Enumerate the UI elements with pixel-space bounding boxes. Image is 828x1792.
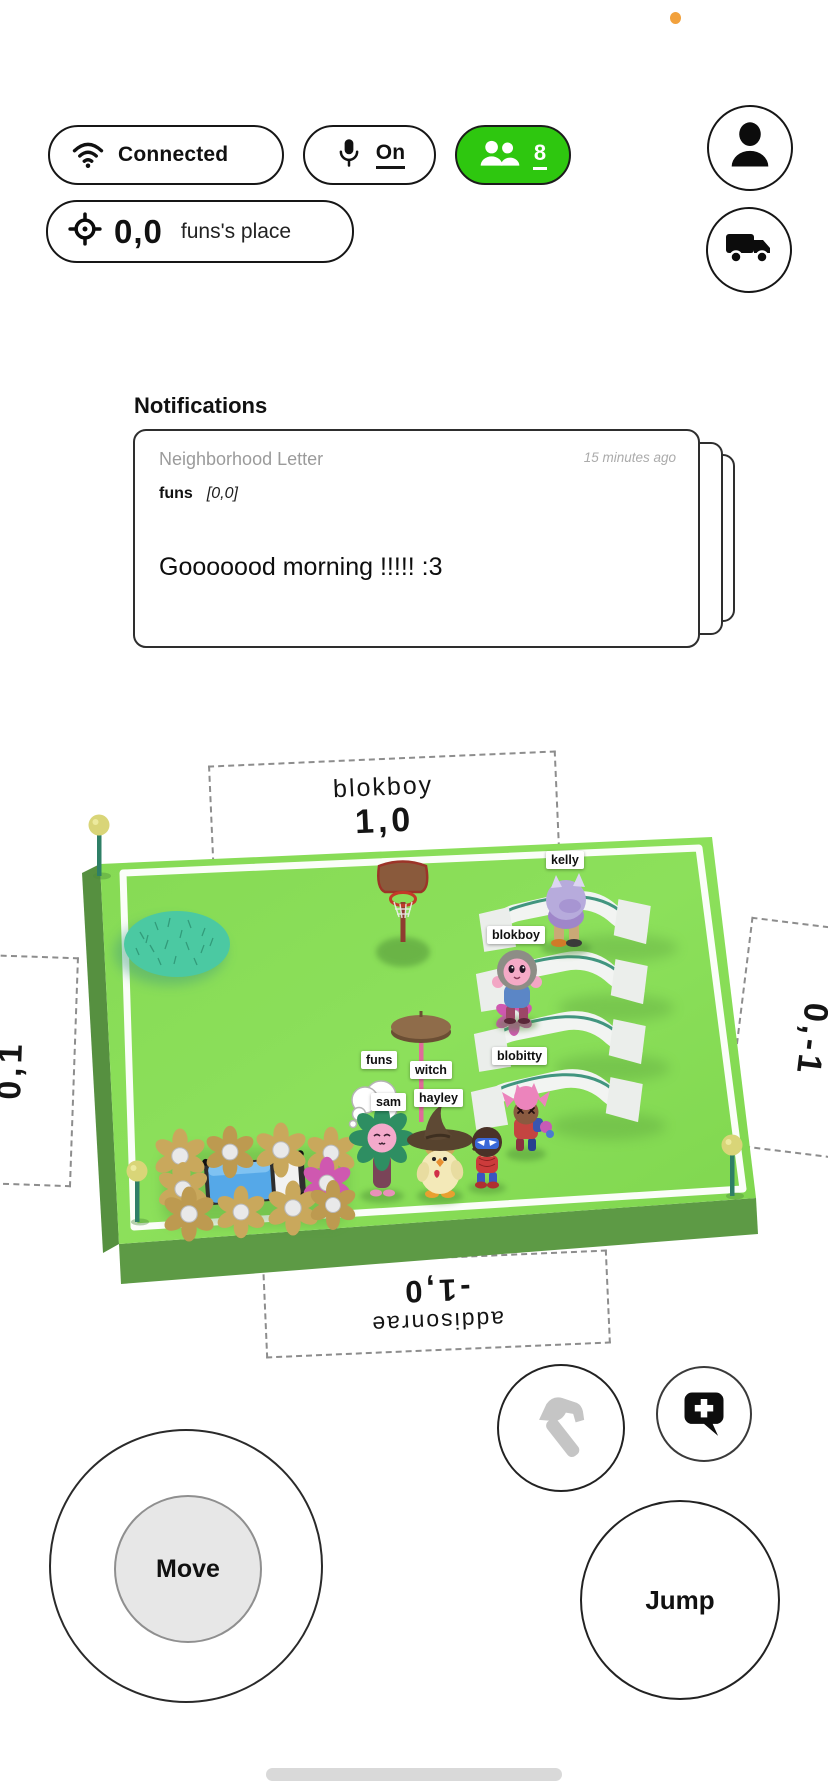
game-world[interactable]: blokboy 1,0 addisonrae -1,0 0,1 0,-1 — [0, 0, 828, 1792]
game-screen: Connected On 8 — [0, 0, 828, 1792]
player-name-tag: witch — [410, 1061, 452, 1079]
player-name-tag: blobitty — [492, 1047, 547, 1065]
world-canvas — [0, 0, 828, 1792]
player-name-tag: kelly — [546, 851, 584, 869]
player-name-tag: blokboy — [487, 926, 545, 944]
player-name-tag: sam — [371, 1093, 406, 1111]
player-name-tag: funs — [361, 1051, 397, 1069]
player-name-tag: hayley — [414, 1089, 463, 1107]
